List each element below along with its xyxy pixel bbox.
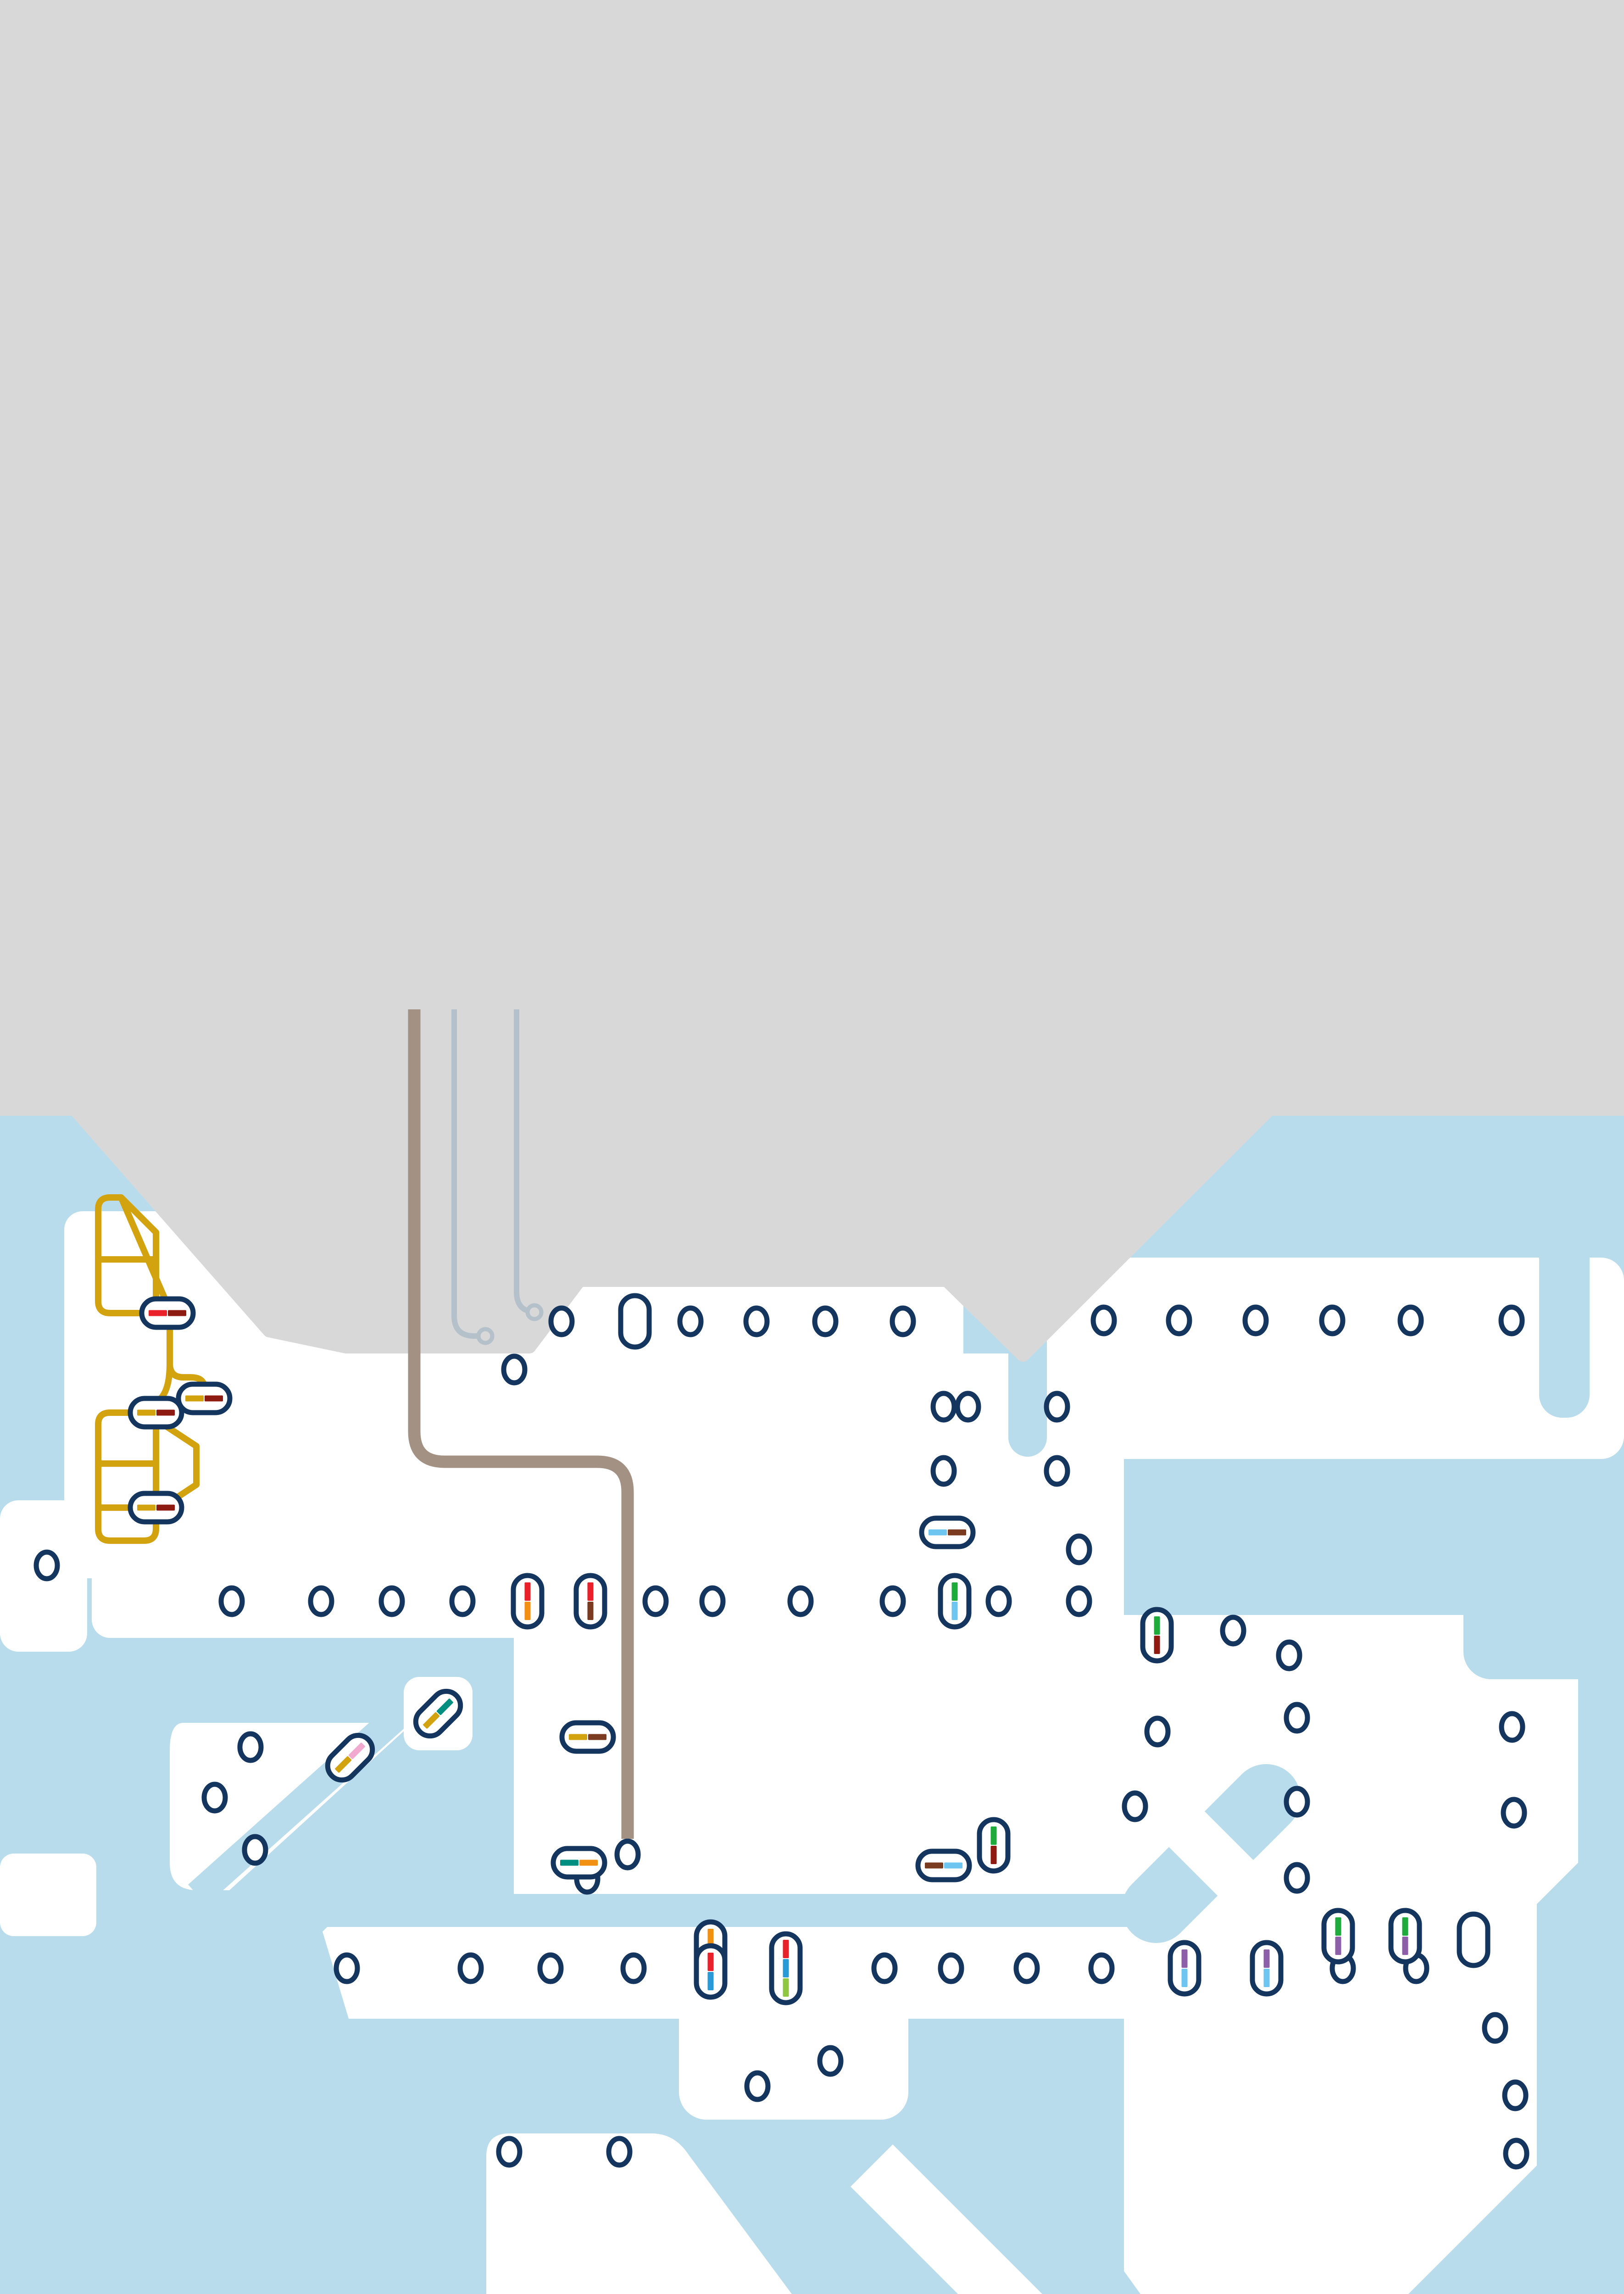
line-tick: [137, 1410, 156, 1416]
station-marker[interactable]: [1286, 1865, 1307, 1891]
station-marker[interactable]: [1068, 1588, 1090, 1615]
station-marker[interactable]: [988, 1588, 1009, 1615]
gray-route-a-terminus: [478, 1329, 492, 1343]
interchange-station-marker[interactable]: [1324, 1910, 1352, 1962]
station-marker[interactable]: [221, 1588, 242, 1615]
station-marker[interactable]: [882, 1588, 903, 1615]
station-marker[interactable]: [1485, 2015, 1506, 2041]
line-tick: [991, 1826, 997, 1845]
line-tick: [569, 1734, 587, 1740]
line-tick: [525, 1582, 531, 1601]
station-marker[interactable]: [540, 1955, 561, 1982]
interchange-body: [621, 1296, 649, 1347]
station-marker[interactable]: [1286, 1788, 1307, 1815]
line-tick: [1182, 1949, 1188, 1968]
interchange-station-marker[interactable]: [562, 1723, 613, 1751]
station-marker[interactable]: [1016, 1955, 1037, 1982]
station-marker[interactable]: [790, 1588, 811, 1615]
line-tick: [205, 1396, 223, 1402]
station-marker[interactable]: [1046, 1393, 1068, 1420]
station-marker[interactable]: [1147, 1718, 1168, 1745]
station-marker[interactable]: [1245, 1307, 1266, 1334]
line-tick: [783, 1940, 789, 1958]
line-tick: [1402, 1917, 1408, 1936]
water-east-strip: [1539, 1109, 1590, 1418]
station-marker[interactable]: [1093, 1307, 1114, 1334]
line-tick: [1264, 1949, 1270, 1968]
station-marker[interactable]: [702, 1588, 723, 1615]
station-marker[interactable]: [1501, 1307, 1522, 1334]
interchange-station-marker[interactable]: [1391, 1910, 1419, 1962]
interchange-body: [1459, 1914, 1488, 1965]
interchange-station-marker[interactable]: [621, 1296, 649, 1347]
interchange-station-marker[interactable]: [918, 1851, 969, 1880]
station-marker[interactable]: [957, 1393, 979, 1420]
line-tick: [948, 1530, 966, 1536]
interchange-station-marker[interactable]: [1170, 1943, 1199, 1994]
line-tick: [1154, 1636, 1160, 1654]
water-east-bay: [1463, 1459, 1624, 1679]
line-tick: [952, 1582, 958, 1601]
station-marker[interactable]: [1124, 1793, 1146, 1820]
station-marker[interactable]: [311, 1588, 332, 1615]
interchange-station-marker[interactable]: [979, 1820, 1008, 1871]
station-marker[interactable]: [892, 1308, 913, 1335]
interchange-station-marker[interactable]: [178, 1384, 230, 1413]
station-marker[interactable]: [204, 1784, 225, 1811]
interchange-station-marker[interactable]: [1252, 1943, 1281, 1994]
station-marker[interactable]: [940, 1955, 962, 1982]
station-marker[interactable]: [623, 1955, 644, 1982]
line-tick: [929, 1530, 947, 1536]
station-marker[interactable]: [460, 1955, 481, 1982]
station-marker[interactable]: [609, 2138, 630, 2165]
station-marker[interactable]: [551, 1308, 572, 1335]
station-marker[interactable]: [499, 2138, 520, 2165]
line-tick: [944, 1863, 962, 1869]
map-viewport: [0, 0, 1624, 2294]
interchange-station-marker[interactable]: [130, 1398, 182, 1427]
interchange-station-marker[interactable]: [1143, 1609, 1171, 1661]
interchange-station-marker[interactable]: [142, 1299, 193, 1327]
line-tick: [708, 1972, 714, 1990]
interchange-station-marker[interactable]: [940, 1576, 969, 1627]
station-marker[interactable]: [680, 1308, 701, 1335]
station-marker[interactable]: [815, 1308, 836, 1335]
station-marker[interactable]: [240, 1734, 261, 1760]
line-tick: [1402, 1937, 1408, 1955]
station-marker[interactable]: [933, 1458, 954, 1484]
interchange-station-marker[interactable]: [513, 1576, 542, 1627]
line-tick: [149, 1310, 167, 1316]
transit-map-canvas: [0, 0, 1624, 2294]
station-marker[interactable]: [452, 1588, 473, 1615]
station-marker[interactable]: [1068, 1536, 1090, 1563]
gray-route-b-terminus: [528, 1305, 541, 1319]
line-tick: [991, 1846, 997, 1864]
land-water-layer: [0, 0, 1624, 2294]
station-marker[interactable]: [1168, 1307, 1190, 1334]
interchange-station-marker[interactable]: [922, 1518, 973, 1547]
station-marker[interactable]: [746, 1308, 767, 1335]
station-marker[interactable]: [504, 1356, 525, 1383]
line-tick: [783, 1959, 789, 1977]
station-marker[interactable]: [381, 1588, 402, 1615]
line-tick: [588, 1602, 594, 1620]
station-marker[interactable]: [874, 1955, 895, 1982]
land-northeast: [1046, 1258, 1624, 1459]
line-tick: [588, 1582, 594, 1601]
line-tick: [1335, 1937, 1341, 1955]
station-marker[interactable]: [1223, 1617, 1244, 1644]
interchange-station-marker[interactable]: [696, 1946, 725, 1997]
line-tick: [952, 1602, 958, 1620]
station-marker[interactable]: [820, 2048, 841, 2074]
station-marker[interactable]: [336, 1955, 357, 1982]
station-marker[interactable]: [1091, 1955, 1112, 1982]
line-tick: [137, 1505, 156, 1511]
interchange-station-marker[interactable]: [553, 1849, 605, 1877]
line-tick: [185, 1396, 204, 1402]
station-marker[interactable]: [1505, 2082, 1526, 2109]
line-tick: [156, 1505, 175, 1511]
station-marker[interactable]: [245, 1837, 266, 1863]
line-tick: [579, 1860, 598, 1866]
line-tick: [1154, 1616, 1160, 1635]
station-marker[interactable]: [1400, 1307, 1421, 1334]
line-tick: [1182, 1969, 1188, 1987]
line-tick: [1264, 1969, 1270, 1987]
line-tick: [1335, 1917, 1341, 1936]
line-tick: [588, 1734, 606, 1740]
station-marker[interactable]: [1503, 1799, 1524, 1826]
station-marker[interactable]: [1286, 1704, 1307, 1731]
line-tick: [783, 1978, 789, 1997]
station-marker[interactable]: [933, 1393, 954, 1420]
line-tick: [156, 1410, 175, 1416]
interchange-station-marker[interactable]: [772, 1934, 800, 2003]
line-tick: [168, 1310, 186, 1316]
interchange-station-marker[interactable]: [576, 1576, 605, 1627]
station-marker[interactable]: [1046, 1458, 1068, 1484]
line-tick: [525, 1602, 531, 1620]
land-west-edge-strip: [0, 1854, 96, 1936]
station-marker[interactable]: [1279, 1642, 1300, 1669]
station-marker[interactable]: [747, 2073, 768, 2099]
line-tick: [560, 1860, 578, 1866]
line-tick: [708, 1953, 714, 1971]
station-marker[interactable]: [1502, 1714, 1523, 1740]
station-marker[interactable]: [617, 1841, 638, 1868]
station-marker[interactable]: [1322, 1307, 1343, 1334]
line-tick: [925, 1863, 943, 1869]
station-marker[interactable]: [645, 1588, 666, 1615]
station-marker[interactable]: [1506, 2140, 1527, 2167]
interchange-station-marker[interactable]: [1459, 1914, 1488, 1965]
interchange-station-marker[interactable]: [130, 1493, 182, 1522]
station-marker[interactable]: [36, 1552, 57, 1579]
